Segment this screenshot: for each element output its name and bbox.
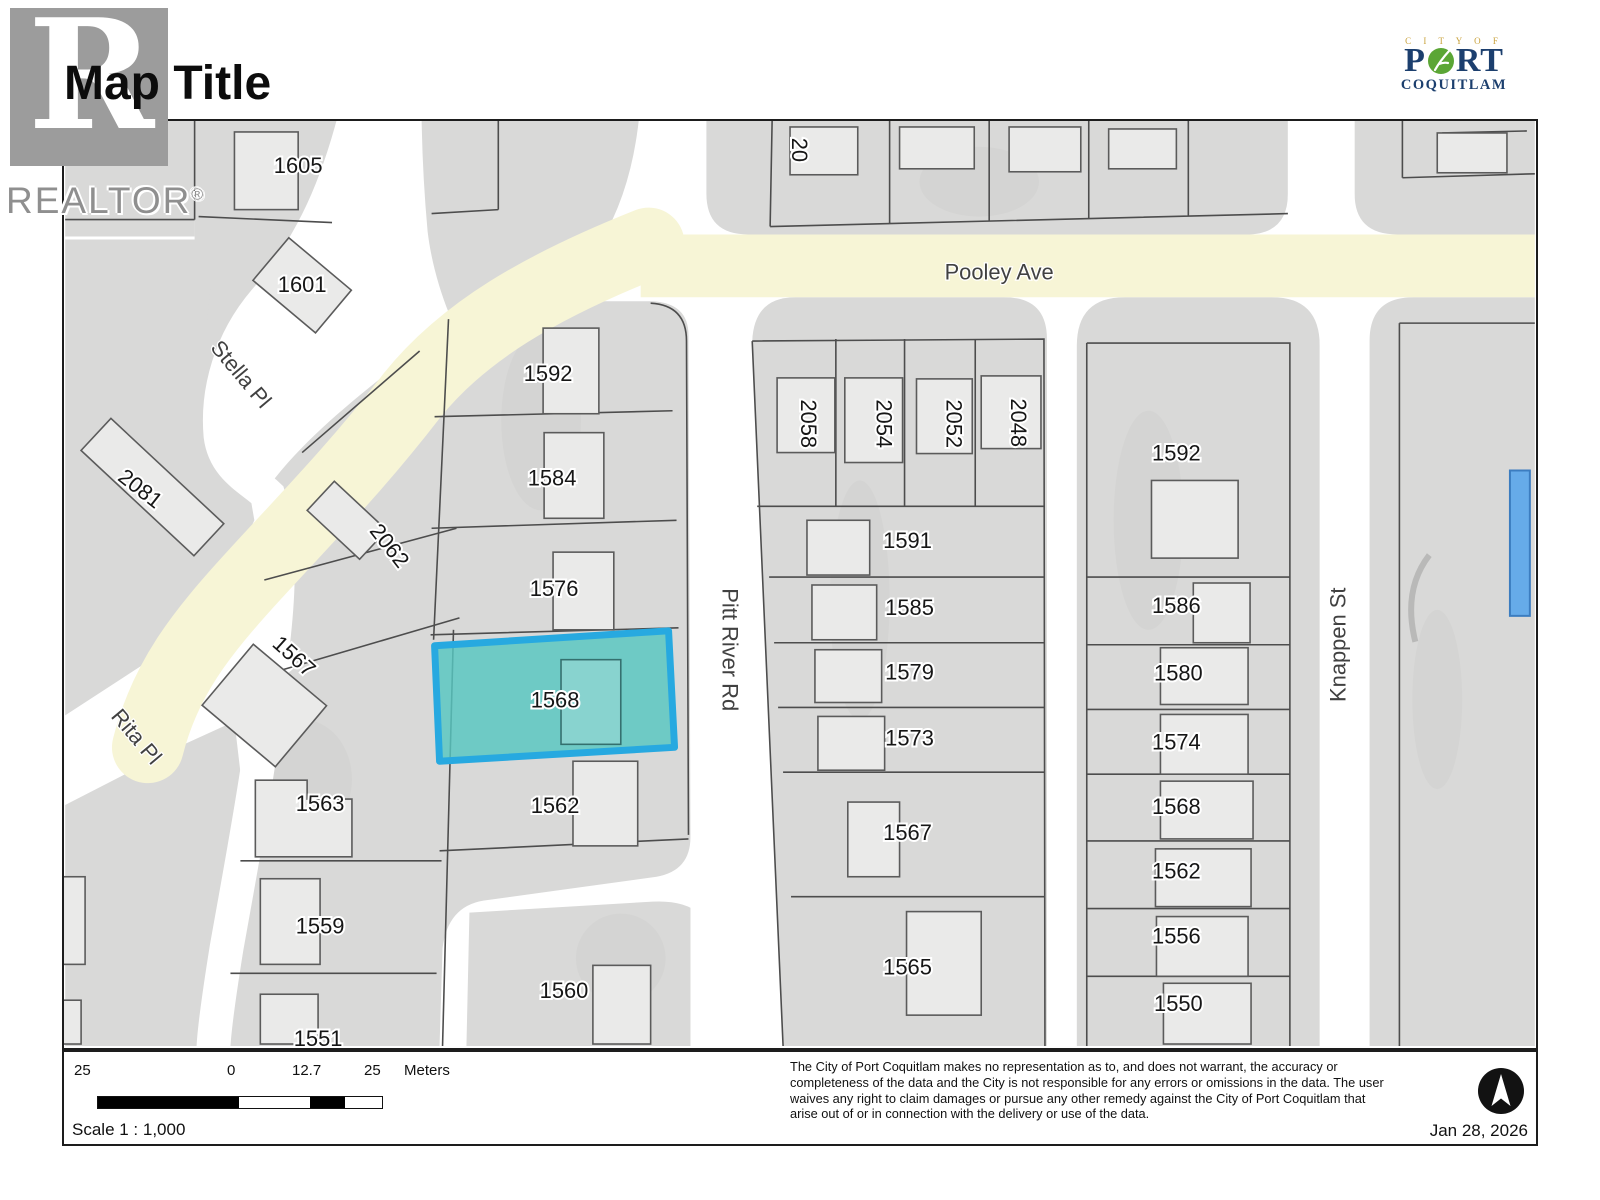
parcel-label-1551: 1551: [294, 1026, 343, 1048]
port-wordmark: P RT: [1396, 46, 1512, 76]
parcel-label-1559: 1559: [296, 913, 345, 938]
leaf-icon: [1426, 46, 1456, 76]
coquitlam-wordmark: COQUITLAM: [1396, 77, 1512, 94]
parcel-label-1579: 1579: [885, 660, 934, 685]
parcel-label-20: 20: [787, 138, 812, 162]
footer-bar: 25 0 12.7 25 Meters Scale 1 : 1,000 The …: [62, 1050, 1538, 1146]
parcel-label-1565: 1565: [883, 954, 932, 979]
disclaimer-text: The City of Port Coquitlam makes no repr…: [790, 1059, 1394, 1122]
parcel-label-1567e: 1567: [883, 820, 932, 845]
parcel-label-1563: 1563: [296, 791, 345, 816]
parcel-label-1576: 1576: [530, 576, 579, 601]
parcel-label-1573: 1573: [885, 725, 934, 750]
parcel-label-1574: 1574: [1152, 729, 1201, 754]
realtor-reg-mark: ®: [191, 187, 205, 204]
parcel-label-1601: 1601: [278, 272, 327, 297]
blue-feature: [1510, 470, 1530, 615]
parcel-label-1592c: 1592: [524, 361, 573, 386]
parcel-label-1586: 1586: [1152, 593, 1201, 618]
parcel-label-1592e: 1592: [1152, 441, 1201, 466]
parcel-label-2054: 2054: [872, 399, 897, 448]
realtor-wordmark-text: REALTOR: [6, 180, 191, 221]
street-knappen-north-path: [1288, 121, 1355, 235]
parcel-label-1585: 1585: [885, 595, 934, 620]
map-date: Jan 28, 2026: [1430, 1121, 1528, 1141]
parcel-label-1568e: 1568: [1152, 794, 1201, 819]
road-pooley: [641, 235, 1535, 298]
port-coquitlam-logo: C I T Y O F P RT COQUITLAM: [1396, 36, 1512, 94]
page-title: Map Title: [64, 56, 271, 111]
north-arrow-icon: [1477, 1067, 1525, 1115]
scale-label-right: 25: [364, 1062, 381, 1079]
scale-label-mid: 12.7: [292, 1062, 321, 1079]
parcel-label-1562e: 1562: [1152, 859, 1201, 884]
scale-unit: Meters: [404, 1062, 450, 1079]
parcel-label-1560: 1560: [540, 978, 589, 1003]
scale-bar-seg-4: [345, 1097, 382, 1108]
scale-label-left: 25: [74, 1062, 91, 1079]
parcel-label-2048: 2048: [1006, 398, 1031, 447]
scale-label-zero: 0: [227, 1062, 235, 1079]
realtor-wordmark: REALTOR®: [6, 180, 205, 222]
parcel-label-1584: 1584: [528, 465, 577, 490]
scale-bar-seg-2: [239, 1097, 310, 1108]
parcel-label-1568h: 1568: [531, 687, 580, 712]
scale-bar-seg-3: [310, 1097, 345, 1108]
parcel-label-1580: 1580: [1154, 661, 1203, 686]
street-label-pooley: Pooley Ave: [945, 259, 1054, 284]
parcel-label-1591: 1591: [883, 528, 932, 553]
parcel-label-2052: 2052: [941, 399, 966, 448]
street-label-knappen: Knappen St: [1326, 588, 1351, 702]
parcel-label-2058: 2058: [796, 399, 821, 448]
parcel-label-1562c: 1562: [531, 793, 580, 818]
parcel-label-1556: 1556: [1152, 923, 1201, 948]
scale-ratio-text: Scale 1 : 1,000: [72, 1120, 185, 1140]
parcel-label-1605: 1605: [274, 153, 323, 178]
street-label-pitt-river: Pitt River Rd: [717, 588, 742, 711]
port-letters-rt: RT: [1456, 46, 1504, 76]
map-frame: Pooley Ave Pitt River Rd Stella Pl Rita …: [62, 119, 1538, 1050]
scale-bar: [97, 1096, 383, 1109]
port-letter-p: P: [1404, 46, 1426, 76]
parcel-label-1550: 1550: [1154, 991, 1203, 1016]
page: Pooley Ave Pitt River Rd Stella Pl Rita …: [0, 0, 1600, 1200]
scale-bar-seg-1: [98, 1097, 239, 1108]
map-canvas[interactable]: Pooley Ave Pitt River Rd Stella Pl Rita …: [64, 121, 1536, 1048]
